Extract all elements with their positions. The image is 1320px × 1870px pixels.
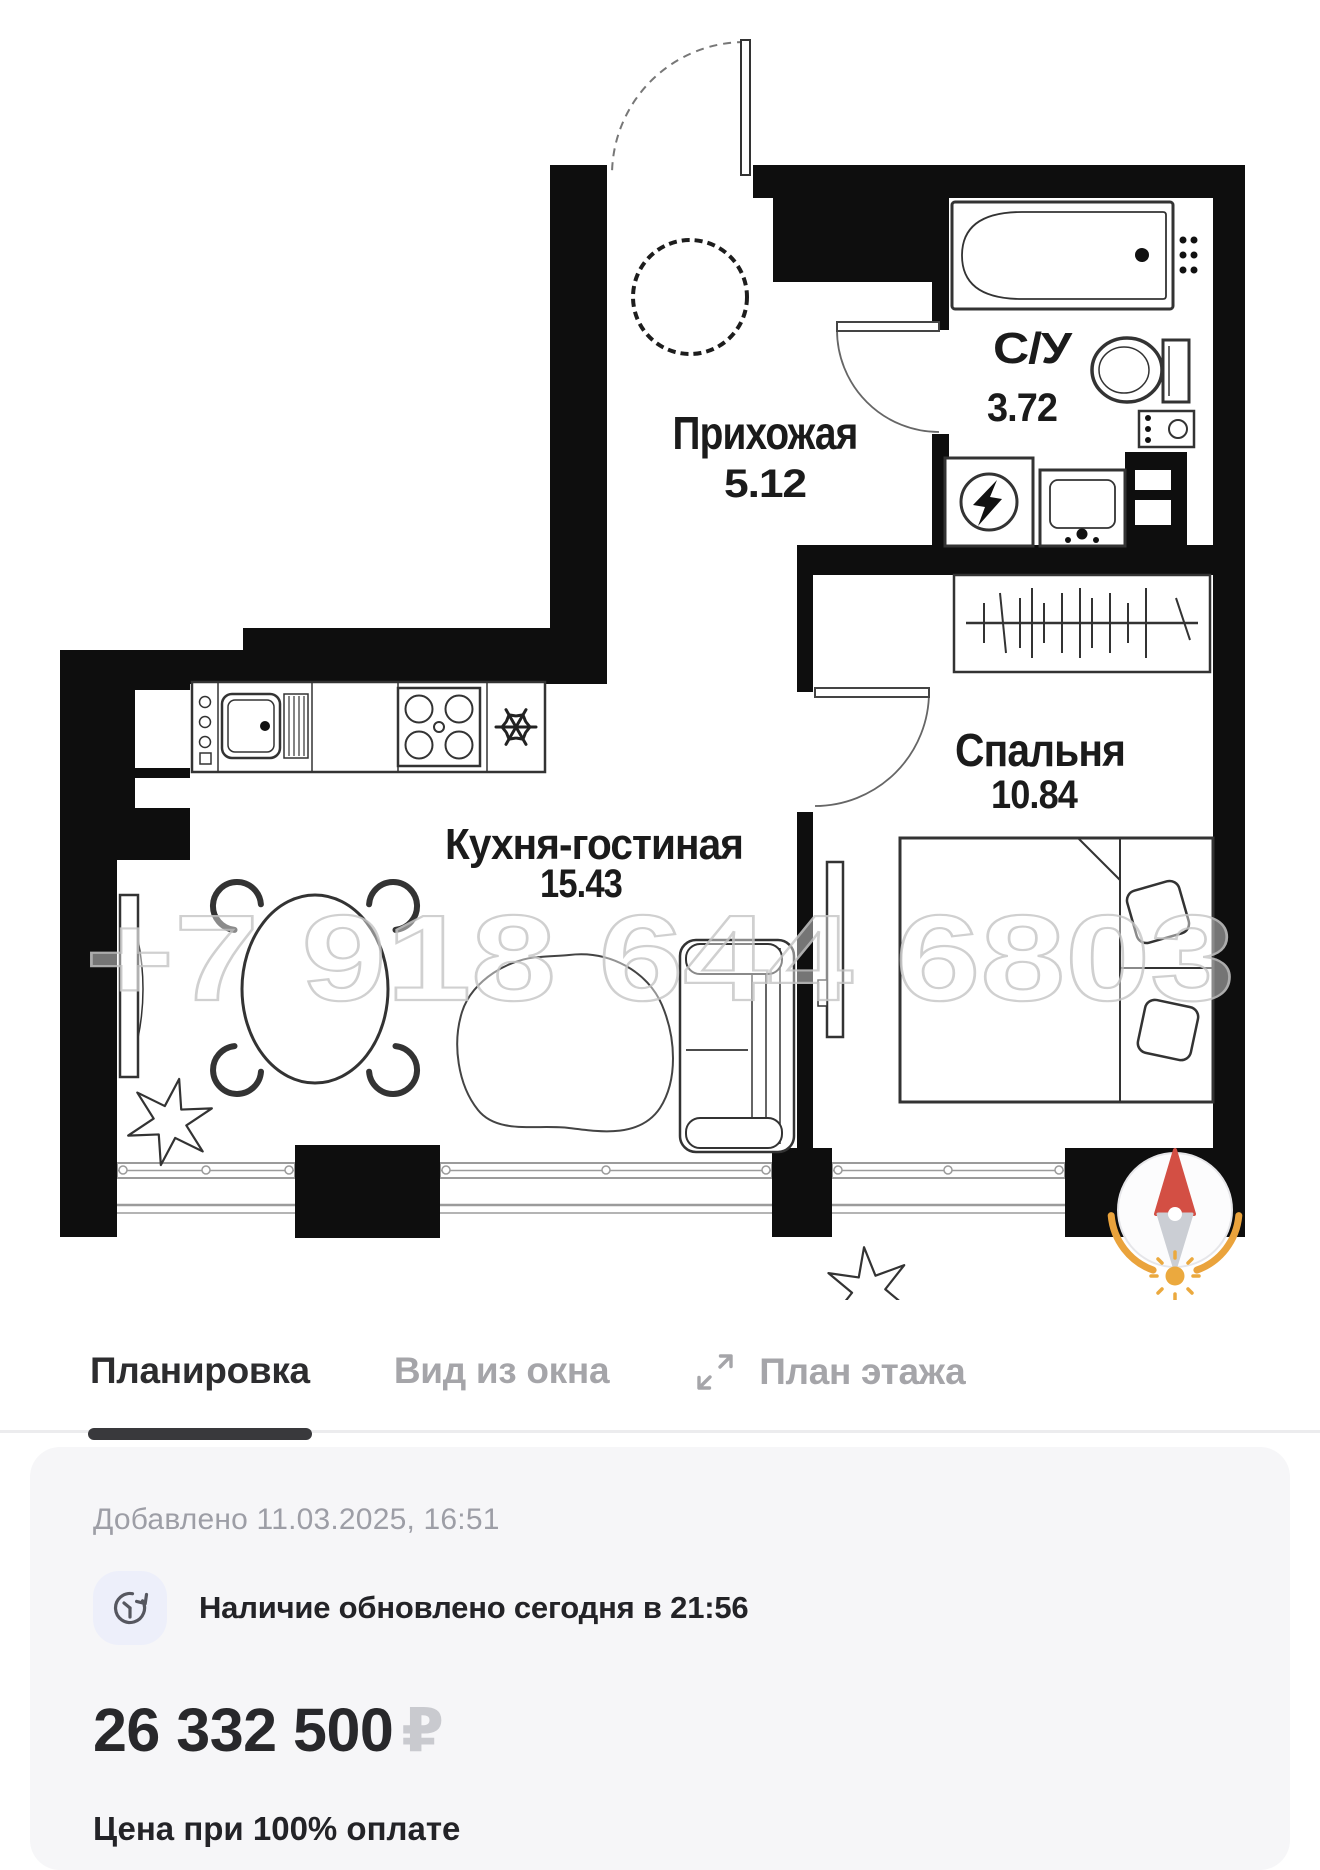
price-value: 26 332 500 [93,1696,393,1764]
tab-floor-plan-label: План этажа [759,1351,965,1393]
listing-info-card: Добавлено 11.03.2025, 16:51 Наличие обно… [30,1447,1290,1870]
listing-page: Прихожая 5.12 С/У 3.72 Кухня-гостиная 15… [0,0,1320,1870]
room-area-bedroom: 10.84 [991,773,1079,817]
hallway-mirror [633,240,747,354]
tab-floor-plan[interactable]: План этажа [693,1350,965,1434]
bathroom-sink [1139,411,1194,447]
floor-plan-image[interactable]: Прихожая 5.12 С/У 3.72 Кухня-гостиная 15… [0,0,1320,1300]
tab-layout-label: Планировка [90,1350,310,1392]
update-clock-icon [109,1587,151,1629]
laundry-sink [1040,470,1125,546]
wardrobe [954,575,1210,672]
room-label-bathroom: С/У [993,324,1073,373]
room-area-hallway: 5.12 [724,462,806,506]
room-label-hallway: Прихожая [673,407,858,459]
currency-ruble: ₽ [401,1695,443,1766]
stove [398,688,480,766]
washing-machine [945,458,1033,546]
price-row: 26 332 500₽ [93,1695,1230,1766]
media-tabs: Планировка Вид из окна План этажа [0,1300,1320,1433]
sun-icon [1151,1252,1199,1300]
watermark-phone: +7 918 644 6803 [85,890,1235,1026]
toilet [1092,338,1189,402]
availability-badge [93,1571,167,1645]
tab-window-view[interactable]: Вид из окна [394,1350,609,1432]
availability-row: Наличие обновлено сегодня в 21:56 [93,1571,1230,1645]
kitchen-counter [192,682,545,772]
added-date: Добавлено 11.03.2025, 16:51 [93,1503,1230,1537]
kitchen-sink [222,694,308,758]
room-label-bedroom: Спальня [955,724,1125,776]
price-note: Цена при 100% оплате [93,1810,1230,1848]
expand-arrows-icon [693,1350,737,1394]
availability-text: Наличие обновлено сегодня в 21:56 [199,1590,748,1626]
tab-layout[interactable]: Планировка [90,1350,310,1432]
tab-window-view-label: Вид из окна [394,1350,609,1392]
room-area-bathroom: 3.72 [987,386,1057,430]
bathtub [952,202,1198,309]
